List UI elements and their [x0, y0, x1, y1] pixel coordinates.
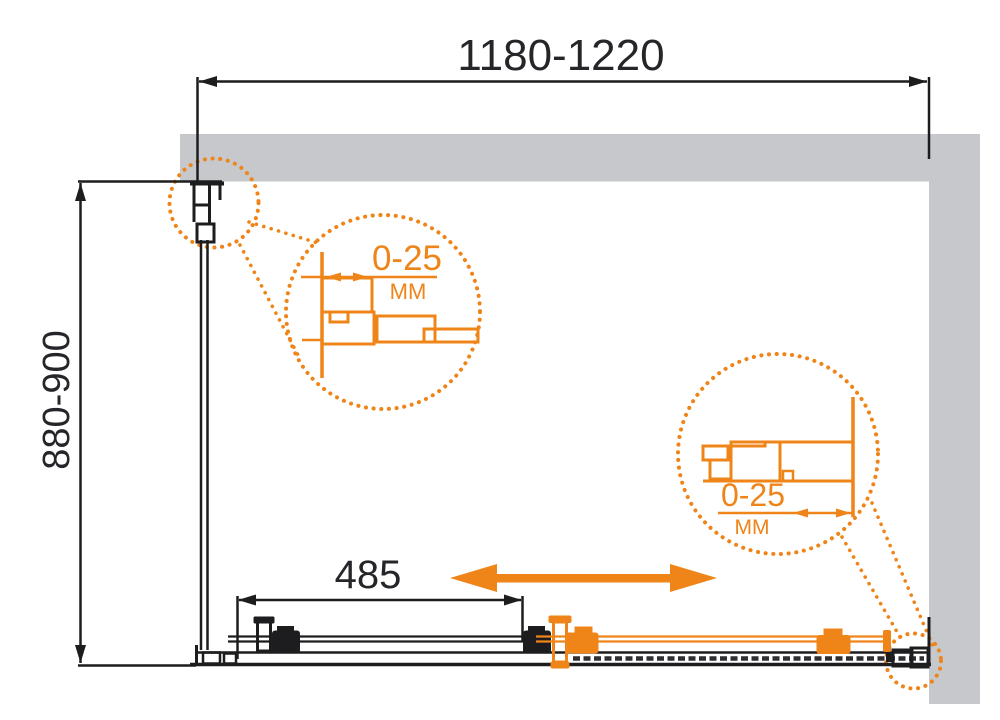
track-right-profile-stub	[886, 653, 894, 662]
detail-view-right-wall-profile: 0-25 MM	[703, 397, 853, 539]
wall-right	[929, 134, 980, 704]
detail-right-unit-label: MM	[735, 516, 770, 539]
callout-leader-right-upper	[842, 537, 900, 637]
door-roller-right-body	[817, 635, 851, 654]
detail-right-value-label: 0-25	[721, 477, 785, 513]
slide-arrow-head-right	[670, 564, 717, 592]
callout-leader-left-upper	[249, 222, 318, 243]
track-left-profile-box-1	[203, 653, 220, 664]
detail-left-profile-box-4	[424, 329, 478, 342]
door-end-bumper	[883, 630, 891, 652]
dimension-depth: 880-900	[36, 182, 222, 666]
slide-arrow-head-left	[450, 564, 497, 592]
detail-view-left-wall-profile: 0-25 MM	[301, 239, 478, 378]
dim-depth-arrow-bottom-icon	[75, 645, 86, 663]
door-roller-left-cap	[575, 627, 593, 634]
shower-enclosure-plan-drawing: 0-25 MM 0-25 MM 1180-1220 880-900	[0, 0, 1000, 720]
dim-width-arrow-right-icon	[909, 76, 927, 87]
track-left-profile-box-2	[224, 654, 236, 664]
dim-opening-label: 485	[335, 553, 402, 597]
callout-leader-right-lower	[872, 503, 935, 651]
callout-leader-left-lower	[240, 245, 299, 357]
detail-left-value-label: 0-25	[372, 239, 442, 278]
wall-top	[180, 134, 980, 182]
dim-opening-arrow-right-icon	[504, 595, 522, 606]
fixed-roller-left-body	[272, 631, 300, 654]
detail-left-profile-box-1	[322, 278, 372, 312]
detail-right-profile-box-1	[703, 446, 728, 460]
detail-right-arrow-left-icon	[793, 509, 808, 518]
slide-arrow-shaft	[495, 574, 672, 583]
door-roller-left-body	[566, 633, 599, 654]
dim-depth-arrow-top-icon	[75, 183, 86, 201]
detail-left-unit-label: MM	[390, 279, 427, 304]
slide-direction-arrow-icon	[450, 564, 717, 592]
side-panel	[190, 183, 224, 650]
door-handle-foot	[551, 662, 570, 669]
detail-right-arrow-right-icon	[836, 509, 851, 518]
callout-detail-circle-right	[678, 354, 878, 554]
dim-width-label: 1180-1220	[457, 31, 664, 80]
dim-opening-arrow-left-icon	[238, 595, 256, 606]
side-panel-bracket-box	[197, 224, 214, 242]
dim-depth-label: 880-900	[36, 330, 78, 469]
dim-width-arrow-left-icon	[199, 76, 217, 87]
door-roller-right-cap	[824, 629, 843, 636]
enclosure-plan-svg: 0-25 MM 0-25 MM 1180-1220 880-900	[0, 0, 1000, 720]
detail-callouts	[170, 159, 942, 689]
